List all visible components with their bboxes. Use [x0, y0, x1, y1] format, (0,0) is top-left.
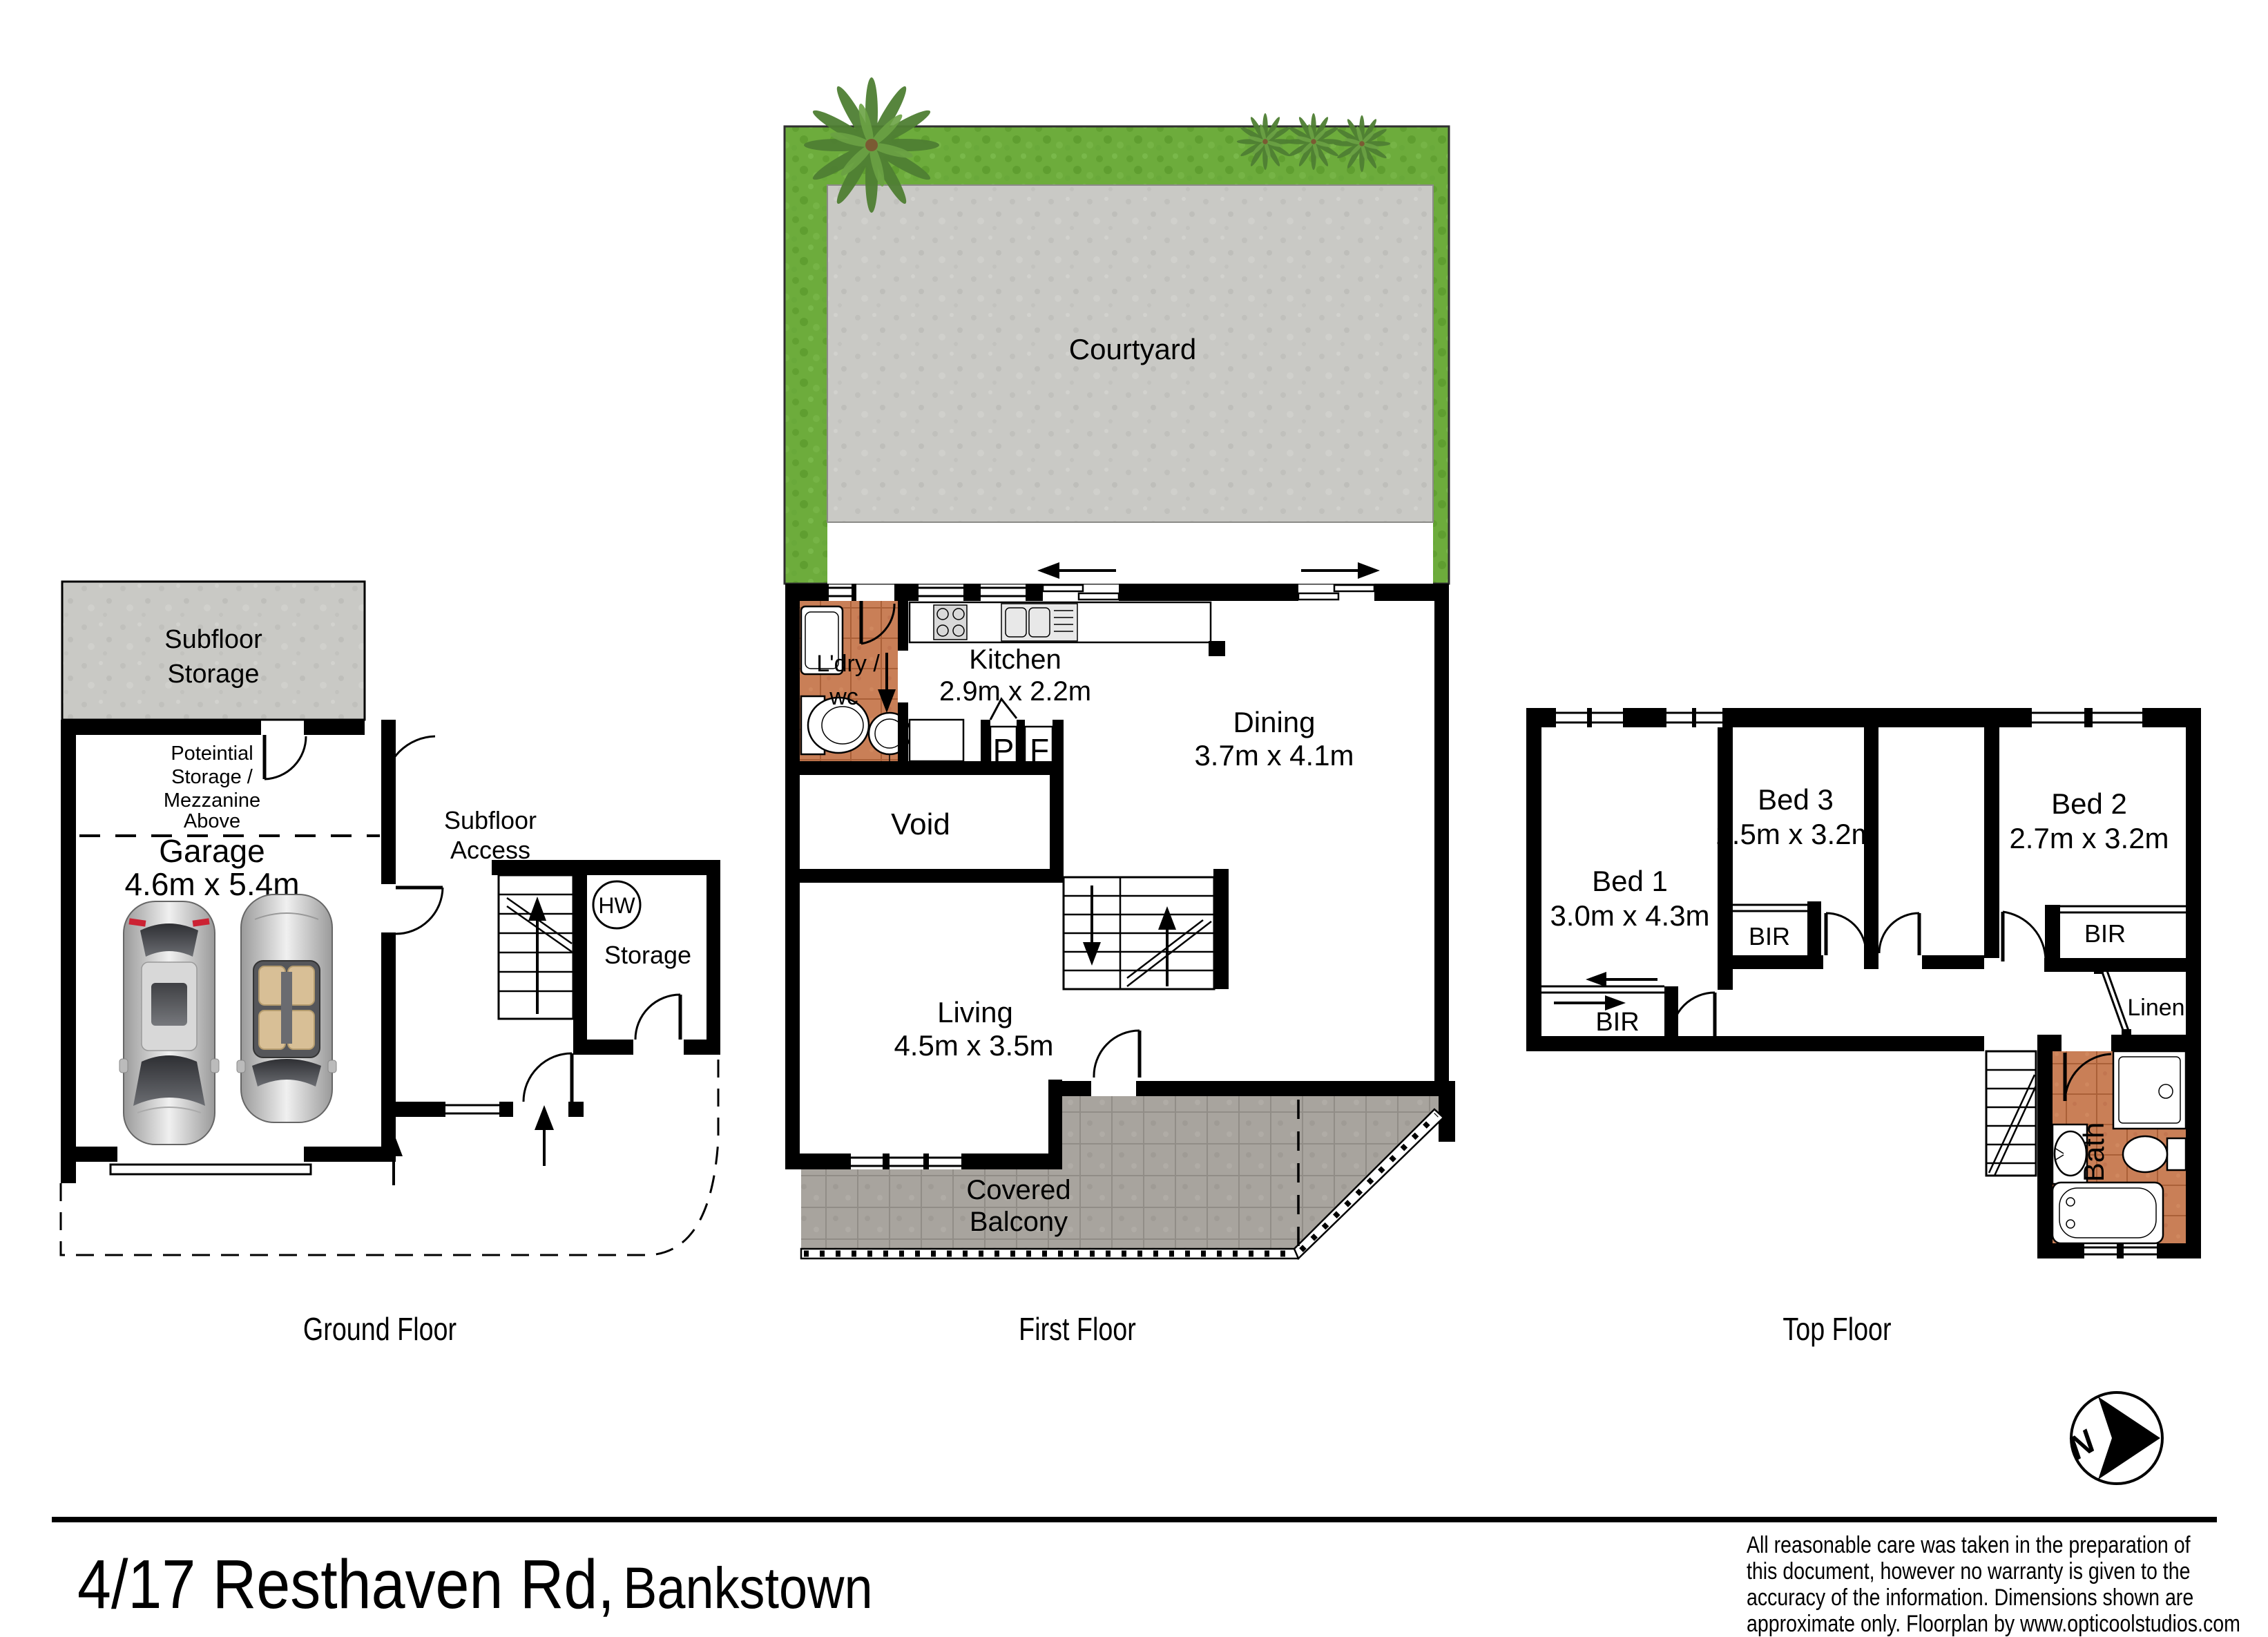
- storage-label: Storage: [604, 941, 691, 969]
- ground-stairs: [499, 875, 573, 1019]
- bath-label: Bath: [2077, 1122, 2110, 1182]
- linen-label: Linen: [2127, 995, 2184, 1021]
- potential-storage-line4: Above: [184, 810, 240, 832]
- courtyard-label: Courtyard: [1069, 333, 1196, 365]
- top-floor-plan: BIR BIR BIR: [1526, 708, 2201, 1347]
- garage-door: [110, 1165, 311, 1174]
- address-title: 4/17 Resthaven Rd,Bankstown: [77, 1546, 873, 1622]
- first-right-wall: [1434, 584, 1449, 1096]
- storage-door: [635, 995, 680, 1040]
- void-top-wall: [785, 761, 1064, 775]
- north-arrow-icon: N: [2062, 1392, 2162, 1484]
- hall-door: [1879, 913, 1919, 955]
- disclaimer-line4: approximate only. Floorplan by www.optic…: [1747, 1611, 2240, 1637]
- balcony-label-line1: Covered: [966, 1175, 1070, 1205]
- bed1-bir-label: BIR: [1595, 1008, 1639, 1037]
- living-dims: 4.5m x 3.5m: [894, 1029, 1053, 1062]
- ground-floor-plan: Subfloor Storage Poteintial Storage /: [61, 582, 720, 1347]
- bed2-door: [2003, 912, 2046, 961]
- laundry-right-wall-a: [898, 601, 908, 651]
- bed1-dims: 3.0m x 4.3m: [1550, 899, 1709, 932]
- linen-door: [2094, 964, 2131, 1039]
- living-bottom-wall: [785, 1153, 1077, 1169]
- disclaimer-line1: All reasonable care was taken in the pre…: [1747, 1532, 2191, 1558]
- laundry-right-wall-b: [898, 702, 908, 761]
- bed2-bir-label: BIR: [2084, 919, 2126, 948]
- dining-dims: 3.7m x 4.1m: [1194, 739, 1354, 772]
- first-floor-caption: First Floor: [1019, 1311, 1136, 1346]
- courtyard-walkway: [827, 522, 1433, 584]
- address-suburb: Bankstown: [623, 1555, 873, 1620]
- footer-rule: [52, 1517, 2217, 1522]
- bed3-label: Bed 3: [1758, 783, 1834, 816]
- living-label: Living: [937, 996, 1013, 1028]
- bed1-label: Bed 1: [1592, 865, 1668, 897]
- top-floor-caption: Top Floor: [1782, 1311, 1891, 1346]
- first-floor-top-windows: [829, 588, 1026, 596]
- bath-toilet: [2123, 1136, 2186, 1172]
- sink-icon: [1001, 604, 1077, 641]
- laundry-label-line1: L'dry /: [816, 651, 880, 677]
- address-main: 4/17 Resthaven Rd,: [77, 1546, 615, 1622]
- subfloor-access-line2: Access: [450, 836, 530, 864]
- bed3-bir: [1733, 905, 1807, 911]
- bed2-label: Bed 2: [2051, 787, 2127, 820]
- laundry-label-line2: wc: [829, 684, 858, 710]
- dining-label: Dining: [1233, 706, 1315, 738]
- entry-window: [445, 1102, 499, 1117]
- top-floor-stairs: [1986, 1051, 2036, 1176]
- hw-label: HW: [598, 893, 635, 918]
- ground-floor-caption: Ground Floor: [303, 1311, 457, 1346]
- shower: [2113, 1051, 2186, 1129]
- subfloor-storage-label-line1: Subfloor: [164, 625, 262, 654]
- disclaimer-line2: this document, however no warranty is gi…: [1747, 1558, 2190, 1585]
- void-right-wall: [1050, 761, 1064, 883]
- car-convertible: [237, 894, 336, 1122]
- car-hatchback: [119, 901, 219, 1145]
- first-floor-stairs: [1064, 869, 1229, 989]
- void-bottom-wall: [785, 869, 1064, 883]
- bed2-bir: [2060, 906, 2186, 912]
- floorplan-page: Subfloor Storage Poteintial Storage /: [0, 0, 2268, 1637]
- kitchen-dims: 2.9m x 2.2m: [939, 676, 1091, 707]
- first-floor-plan: Courtyard: [785, 77, 1455, 1347]
- bed3-door: [1826, 913, 1866, 955]
- kitchen-label: Kitchen: [969, 644, 1061, 675]
- disclaimer-line3: accuracy of the information. Dimensions …: [1747, 1585, 2193, 1611]
- footer: 4/17 Resthaven Rd,Bankstown All reasonab…: [52, 1517, 2240, 1637]
- balcony-label-line2: Balcony: [970, 1207, 1068, 1237]
- subfloor-access-line1: Subfloor: [444, 806, 537, 834]
- potential-storage-line2: Storage /: [171, 766, 253, 788]
- subfloor-storage-label-line2: Storage: [167, 660, 259, 689]
- bed3-bir-label: BIR: [1749, 922, 1790, 950]
- balcony-door: [1094, 1031, 1140, 1078]
- bed1-bir: [1541, 972, 1664, 1011]
- covered-balcony-floor: [801, 1096, 1439, 1249]
- garage-label: Garage: [159, 833, 265, 869]
- entry-door: [523, 1053, 572, 1166]
- bed3-dims: 2.5m x 3.2m: [1716, 818, 1875, 850]
- bed2-dims: 2.7m x 3.2m: [2009, 822, 2169, 854]
- floorplan-svg: Subfloor Storage Poteintial Storage /: [0, 0, 2268, 1637]
- bathtub: [2053, 1183, 2163, 1243]
- potential-storage-line1: Poteintial: [171, 743, 253, 765]
- potential-storage-line3: Mezzanine: [164, 789, 260, 812]
- void-label: Void: [891, 807, 950, 841]
